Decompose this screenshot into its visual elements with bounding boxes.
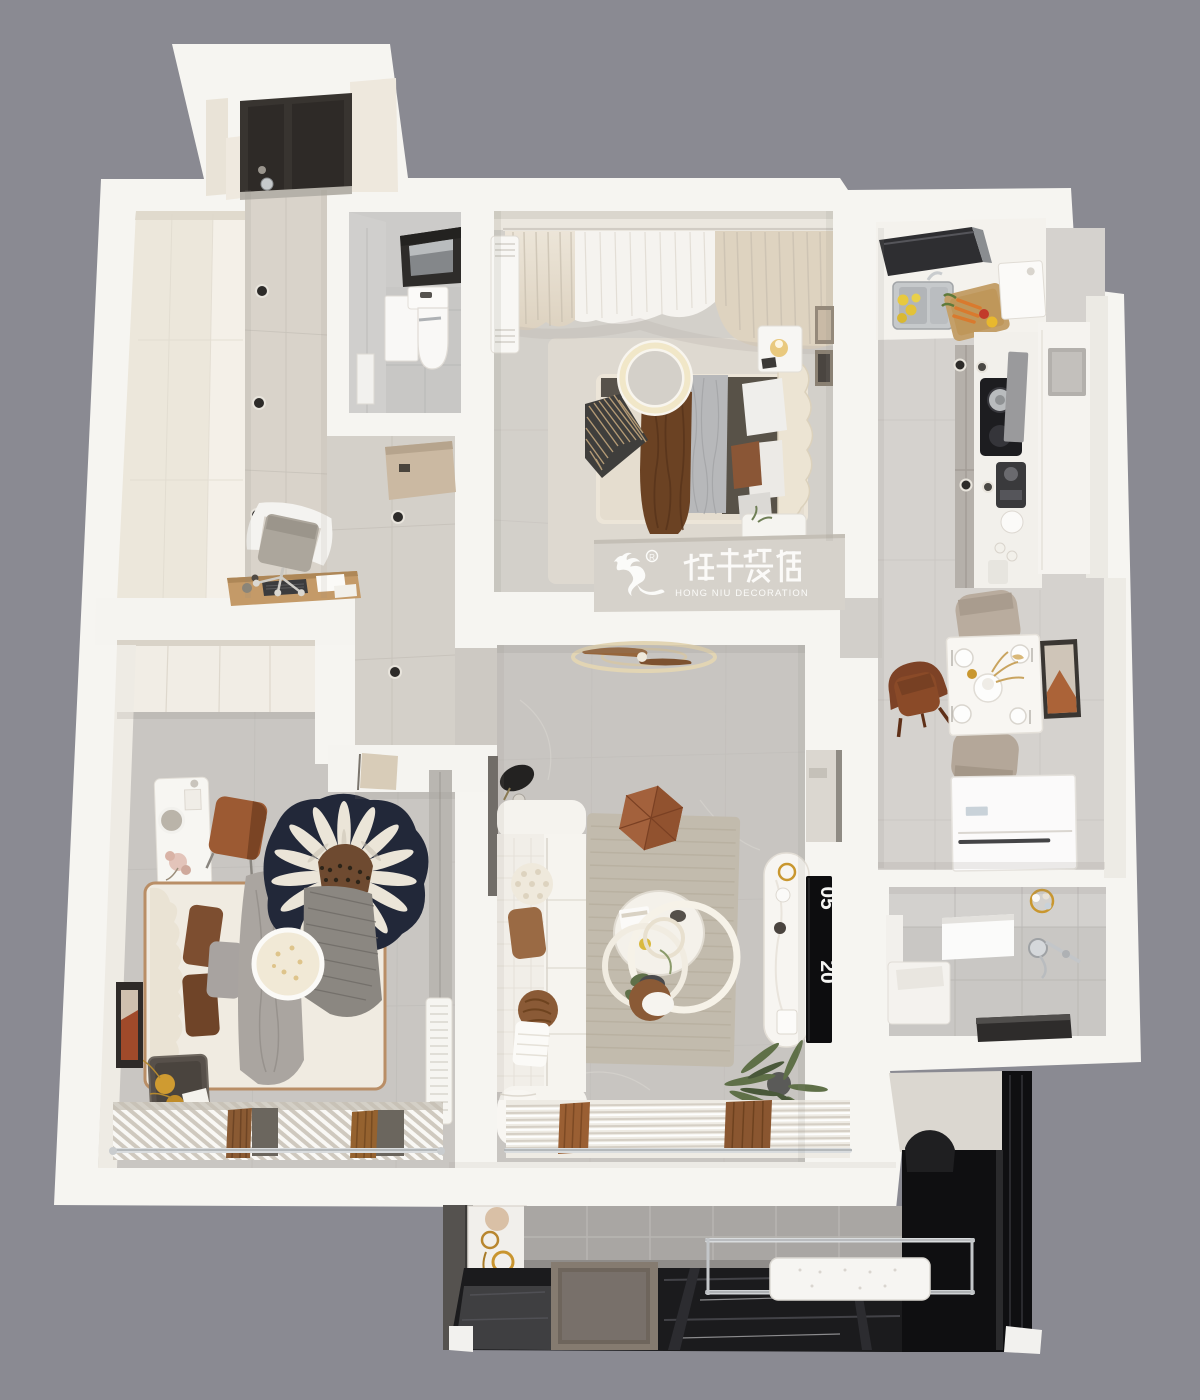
svg-text:20: 20 [816, 960, 839, 983]
svg-text:R: R [649, 553, 655, 562]
svg-text:05: 05 [816, 886, 839, 910]
svg-text:HONG NIU DECORATION: HONG NIU DECORATION [675, 588, 809, 599]
